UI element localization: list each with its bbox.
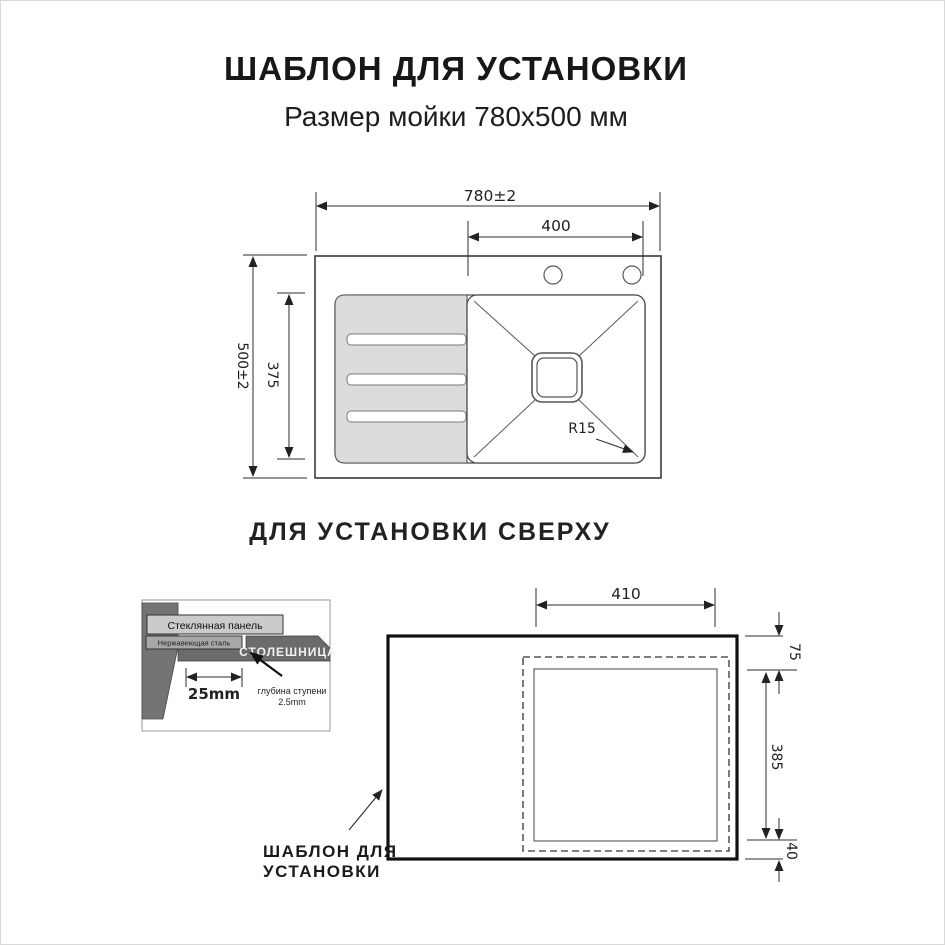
step-depth-label-2: 2.5mm xyxy=(278,697,306,707)
drainboard-groove xyxy=(347,334,466,345)
countertop-label: СТОЛЕШНИЦА xyxy=(239,645,337,659)
dim-bowl-width: 400 xyxy=(541,217,571,235)
dim-bottom-offset: 40 xyxy=(783,842,799,860)
dim-top-offset: 75 xyxy=(786,643,802,661)
template-label-2: УСТАНОВКИ xyxy=(263,862,381,881)
glass-panel-label: Стеклянная панель xyxy=(167,620,263,632)
dim-overall-width: 780±2 xyxy=(464,187,516,205)
drawing-canvas: 780±2 400 500±2 375 R15 Стеклянная панел… xyxy=(0,0,945,945)
faucet-hole xyxy=(544,266,562,284)
template-leader-line xyxy=(349,790,382,830)
dim-cutout-width: 410 xyxy=(611,585,641,603)
faucet-hole xyxy=(623,266,641,284)
cutting-template-view: 410 75 385 40 ШАБЛОН ДЛЯ УСТАНОВКИ xyxy=(263,585,802,882)
edge-section-detail: Стеклянная панель Нержавеющая сталь СТОЛ… xyxy=(142,600,337,731)
dim-cutout-height: 385 xyxy=(768,744,784,771)
step-depth-label-1: глубина ступени xyxy=(258,686,327,696)
drainboard-groove xyxy=(347,411,466,422)
dim-inner-height: 375 xyxy=(264,362,280,389)
step-width-label: 25mm xyxy=(188,685,240,703)
sink-top-view xyxy=(315,256,661,478)
installation-template-page: ШАБЛОН ДЛЯ УСТАНОВКИ Размер мойки 780х50… xyxy=(0,0,945,945)
drain-inner xyxy=(537,358,577,397)
corner-radius-label: R15 xyxy=(568,421,596,437)
drainboard-groove xyxy=(347,374,466,385)
template-label-1: ШАБЛОН ДЛЯ xyxy=(263,842,398,861)
dim-overall-height: 500±2 xyxy=(234,342,250,389)
steel-label: Нержавеющая сталь xyxy=(158,639,231,648)
